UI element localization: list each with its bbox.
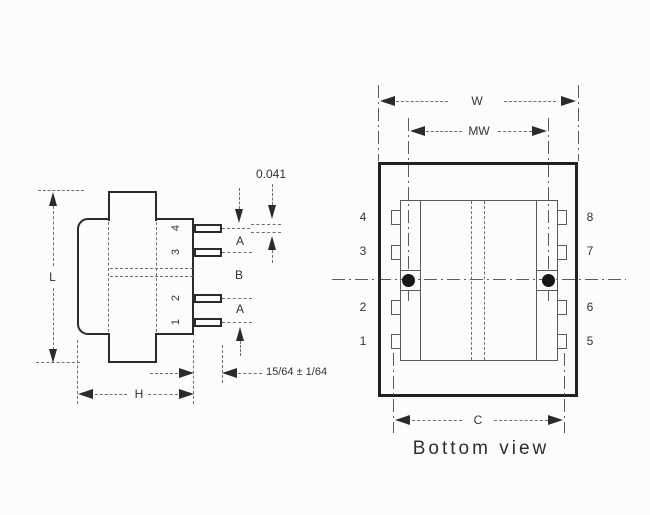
c-dim-ext-left: [393, 353, 394, 433]
bottom-view-drawing: W MW: [0, 0, 650, 515]
c-dim-arrow-right-icon: [548, 415, 563, 425]
bottom-view-caption: Bottom view: [381, 437, 581, 461]
mounting-hole-left: [402, 274, 415, 287]
right-block-notch-bottom: [536, 290, 558, 291]
w-dim-label: W: [468, 94, 486, 108]
w-dim-ext-right: [578, 85, 579, 161]
bv-pin-6: [557, 300, 567, 315]
bv-pin-3: [391, 245, 401, 260]
bv-pin-4-label: 4: [356, 210, 370, 224]
bv-pin-7: [557, 245, 567, 260]
drawing-canvas: L H 15/64 ± 1/64 0.041 A B: [0, 0, 650, 515]
w-dim-stem-right: [504, 101, 556, 102]
bobbin-divider-left: [420, 200, 421, 361]
bv-pin-4: [391, 210, 401, 225]
c-dim-label: C: [470, 413, 486, 427]
bv-pin-1: [391, 334, 401, 349]
w-dim-ext-left: [378, 85, 379, 161]
mw-dim-stem-right: [498, 131, 532, 132]
c-dim-stem-left: [412, 420, 462, 421]
right-block-notch-top: [536, 270, 558, 271]
w-dim-stem-left: [396, 101, 448, 102]
c-dim-stem-right: [494, 420, 548, 421]
bv-pin-1-label: 1: [356, 334, 370, 348]
bv-pin-5-label: 5: [583, 334, 597, 348]
bv-pin-8: [557, 210, 567, 225]
left-block-notch-top: [400, 270, 420, 271]
left-block-notch-bottom: [400, 290, 420, 291]
c-dim-arrow-left-icon: [395, 415, 410, 425]
bv-pin-8-label: 8: [583, 210, 597, 224]
c-dim-ext-right: [564, 353, 565, 433]
mw-dim-stem-left: [426, 131, 462, 132]
bobbin-footprint: [400, 200, 558, 361]
mw-dim-arrow-right-icon: [532, 126, 547, 136]
w-dim-arrow-right-icon: [561, 96, 576, 106]
bv-pin-6-label: 6: [583, 300, 597, 314]
core-column-line-right: [484, 201, 485, 360]
bv-pin-2-label: 2: [356, 300, 370, 314]
bv-pin-7-label: 7: [583, 244, 597, 258]
bv-pin-3-label: 3: [356, 244, 370, 258]
core-column-line-left: [471, 201, 472, 360]
mounting-hole-right: [542, 274, 555, 287]
w-dim-arrow-left-icon: [380, 96, 395, 106]
mw-dim-label: MW: [463, 124, 495, 138]
mw-dim-arrow-left-icon: [410, 126, 425, 136]
bv-pin-5: [557, 334, 567, 349]
bobbin-divider-right: [536, 200, 537, 361]
bv-pin-2: [391, 300, 401, 315]
